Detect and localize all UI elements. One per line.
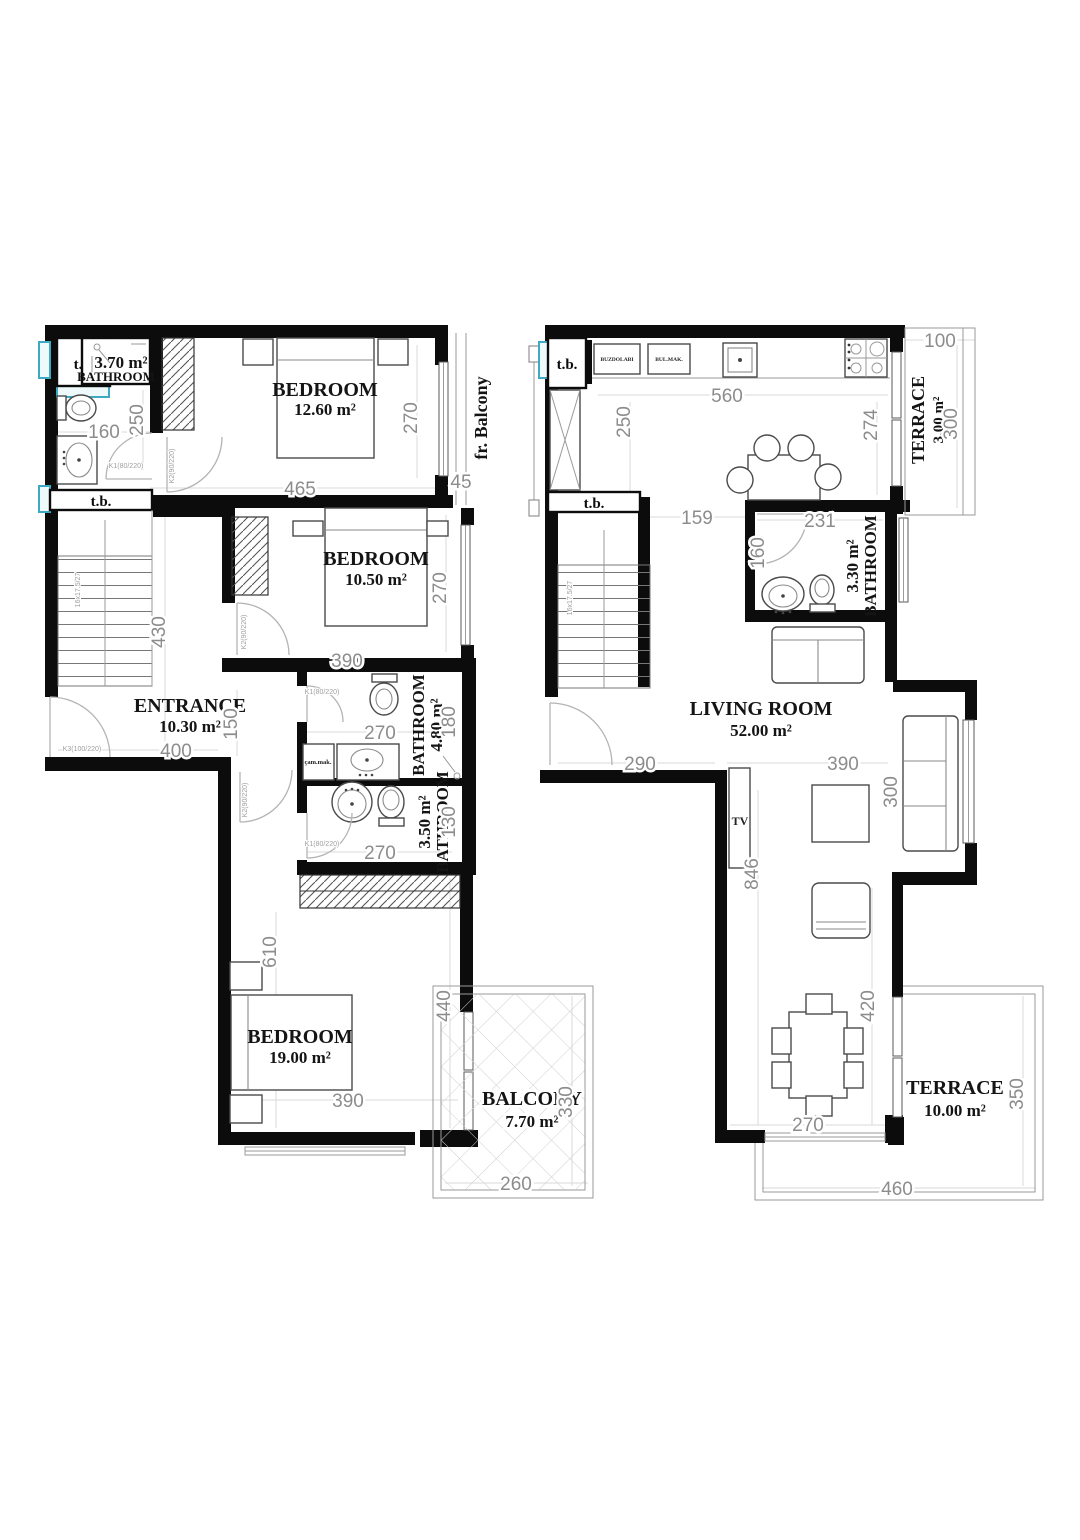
bathroom1-name: BATHROOM [77,369,155,384]
window-living [963,720,974,843]
floorplan-page: fr. Balcony t.b. t.b. 3.70 m² BATHROOM [0,0,1080,1540]
door-code: K2(90/220) [242,783,249,818]
terrace-bottom-name: TERRACE [906,1077,1004,1099]
fridge-icon: BUZDOLABI [594,344,640,374]
bedroom3-area: 19.00 m² [269,1048,331,1067]
dim: 610 [260,936,281,968]
tb-label: t.b. [584,496,605,512]
tv-label: TV [732,814,749,828]
dim: 250 [614,406,635,438]
bedroom3-name: BEDROOM [247,1026,353,1048]
toilet-icon [370,674,398,715]
dim: 250 [127,404,148,436]
door-code: K1(80/220) [109,463,144,470]
stair-code: 16x17.5/27 [75,573,82,608]
bedroom2-name: BEDROOM [323,548,429,570]
window-bedroom2 [461,525,470,645]
terrace-top-name: TERRACE [908,376,928,464]
door-code: K2(90/220) [241,615,248,650]
dim: 390 [332,1091,364,1112]
toilet-icon [810,575,835,612]
dim: 420 [858,990,879,1022]
tb-label: t.b. [91,494,112,510]
floorplan-drawing: fr. Balcony t.b. t.b. 3.70 m² BATHROOM [0,0,1080,1540]
toilet-icon [378,786,404,826]
entrance-area: 10.30 m² [159,717,221,736]
dim: 290 [624,754,656,775]
dim: 270 [430,572,451,604]
sink-icon [57,436,97,484]
coffee-table-icon [812,785,869,842]
dim: 160 [88,422,120,443]
dim: 430 [149,616,170,648]
dim: 460 [881,1179,913,1200]
wardrobe-icon [162,338,194,430]
bedroom1-name: BEDROOM [272,379,378,401]
dim: 130 [439,806,460,838]
door-code: K1(80/220) [305,841,340,848]
bathroom-f2-name: BATHROOM [861,515,880,617]
window-bedroom1 [439,362,448,476]
kitchen-sink-icon [723,343,757,377]
dim: 390 [827,754,859,775]
stair-code: 16x17.5/27 [567,581,574,616]
bathroom2-name: BATHROOM [409,674,428,776]
dim: 440 [434,990,455,1022]
bedroom1-area: 12.60 m² [294,400,356,419]
dim: 560 [711,386,743,407]
living-room-name: LIVING ROOM [690,698,833,720]
dim: 45 [450,472,471,493]
dim: 160 [748,537,769,569]
stove-icon [845,339,887,377]
dim: 270 [401,402,422,434]
door-code: K3(100/220) [63,746,102,753]
window-icon [39,342,50,378]
balcony-area: 7.70 m² [505,1112,558,1131]
terrace-bottom-area: 10.00 m² [924,1101,986,1120]
dim: 231 [804,511,836,532]
wardrobe-icon [232,517,268,595]
dishwasher-label: BUL.MAK. [655,357,683,363]
dim: 300 [881,776,902,808]
fr-balcony-label: fr. Balcony [471,376,491,459]
tb-label: t.b. [557,357,578,373]
living-room-area: 52.00 m² [730,721,792,740]
dim: 390 [331,651,363,672]
dim: 270 [364,843,396,864]
dim: 465 [284,479,316,500]
bedroom2-area: 10.50 m² [345,570,407,589]
toilet-icon [57,395,96,421]
dim: 180 [439,706,460,738]
dim: 159 [681,508,713,529]
sofa-3seat-icon [903,716,958,851]
window-bathroom2f [899,518,908,602]
window-icon [39,486,50,512]
dim: 274 [861,409,882,441]
elevator-shaft-icon [550,390,580,490]
dim: 330 [556,1086,577,1118]
dishwasher-icon: BUL.MAK. [648,344,690,374]
sink-icon [337,744,399,780]
door-code: K1(80/220) [305,689,340,696]
dim: 270 [792,1115,824,1136]
fridge-label: BUZDOLABI [600,357,633,363]
sofa-2seat-icon [772,627,864,683]
dim: 270 [364,723,396,744]
dim: 400 [160,741,192,762]
tv-unit-icon: TV [729,768,750,868]
dim: 150 [221,708,242,740]
washing-machine-label: çam.mak. [304,759,331,766]
bathroom-f2-area: 3.30 m² [843,539,862,592]
dim: 300 [941,408,962,440]
washing-machine-icon: çam.mak. [303,744,334,780]
door-code: K2(90/220) [169,449,176,484]
dim: 350 [1007,1078,1028,1110]
bathroom3-area: 3.50 m² [415,795,434,848]
dim: 260 [500,1174,532,1195]
dim: 100 [924,331,956,352]
armchair-icon [812,883,870,938]
dim: 846 [742,858,763,890]
